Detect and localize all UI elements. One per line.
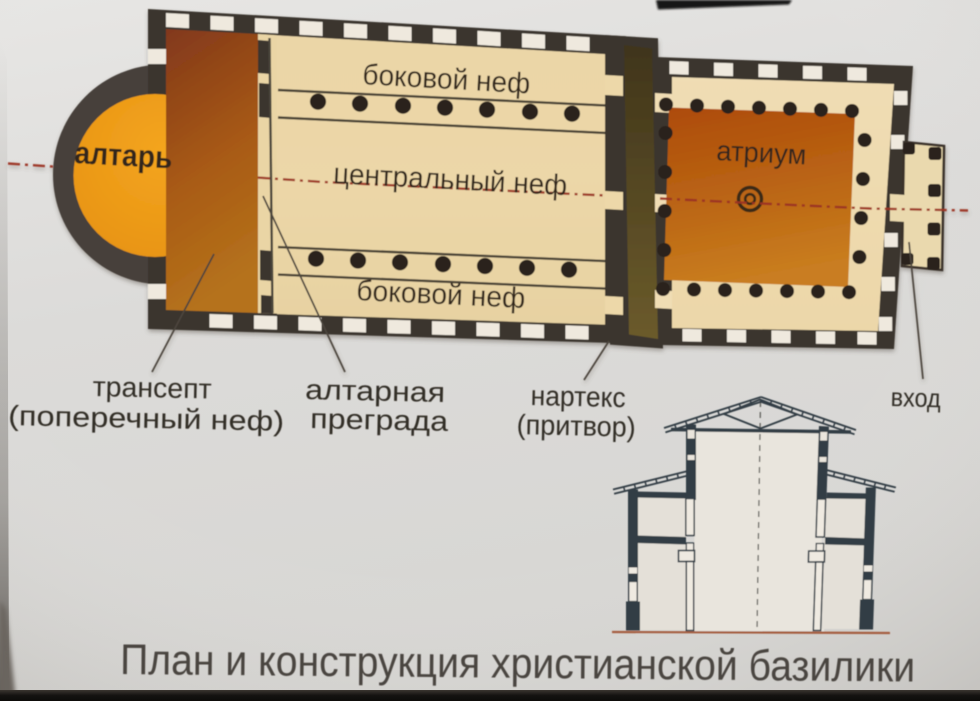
svg-text:нартекс: нартекс <box>530 380 626 413</box>
svg-text:(притвор): (притвор) <box>516 409 636 443</box>
svg-text:атриум: атриум <box>716 135 807 170</box>
svg-text:План и конструкция христианско: План и конструкция христианской базилики <box>120 636 915 692</box>
svg-text:алтарь: алтарь <box>74 135 174 175</box>
svg-text:преграда: преграда <box>310 403 449 437</box>
svg-text:(поперечный неф): (поперечный неф) <box>8 400 285 437</box>
svg-text:вход: вход <box>890 382 941 413</box>
svg-text:трансепт: трансепт <box>92 371 212 404</box>
